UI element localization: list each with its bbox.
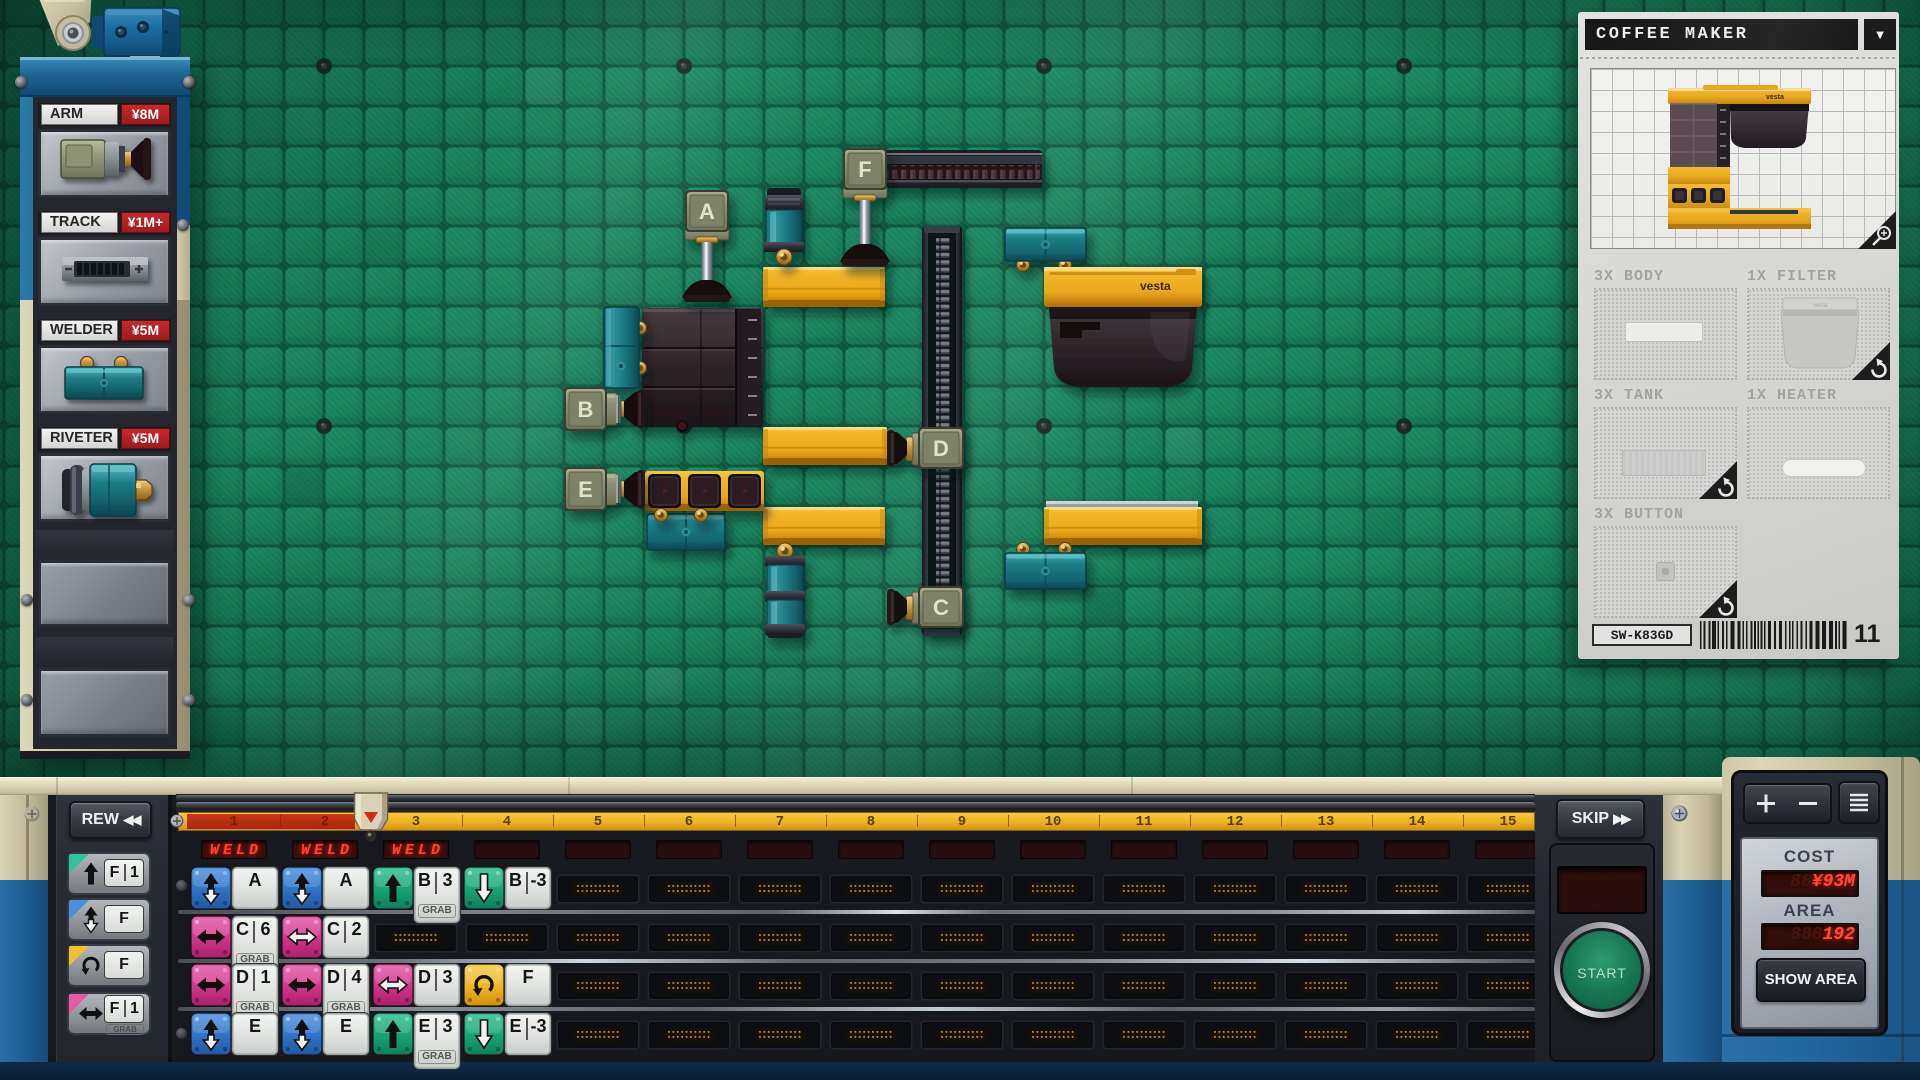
svg-text:C: C <box>933 595 949 620</box>
svg-text:B: B <box>578 397 594 422</box>
svg-text:A: A <box>699 199 715 224</box>
svg-text:F: F <box>858 157 871 182</box>
svg-text:E: E <box>578 477 593 502</box>
svg-text:vesta: vesta <box>1813 303 1828 309</box>
svg-text:vesta: vesta <box>1140 279 1171 293</box>
svg-text:vesta: vesta <box>1766 94 1784 101</box>
svg-text:D: D <box>933 436 949 461</box>
